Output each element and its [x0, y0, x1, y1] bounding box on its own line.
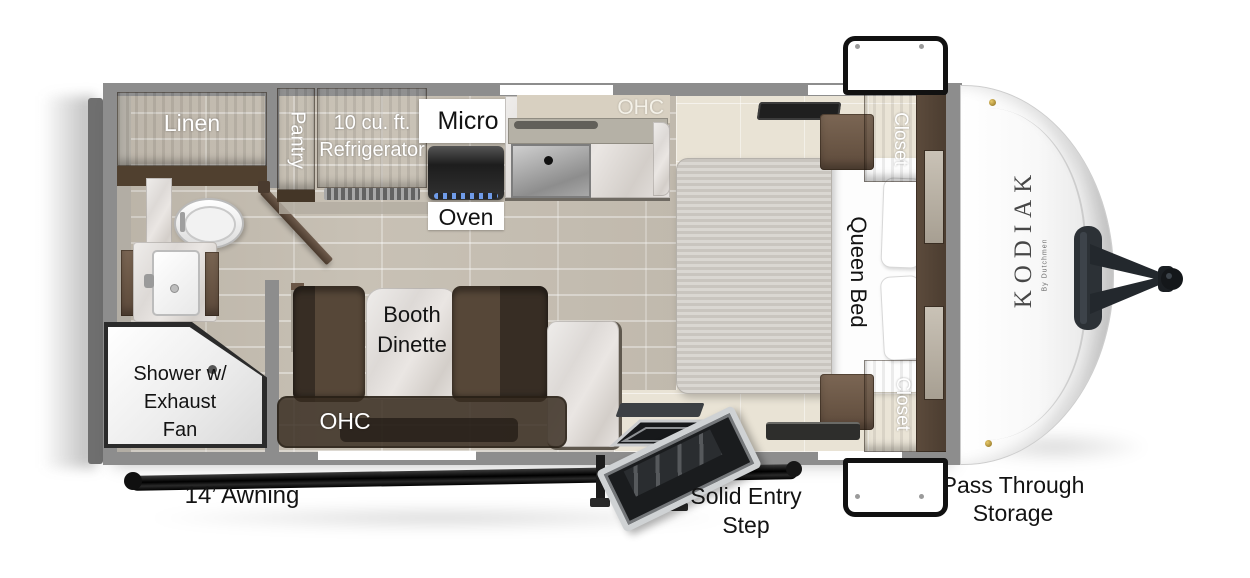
bathroom-sink — [152, 250, 200, 316]
toilet-seat — [184, 206, 236, 243]
oven — [428, 146, 504, 200]
brand-byline: By Dutchmen — [1042, 238, 1049, 291]
entry-step-foot-left — [590, 498, 610, 507]
storage-door-top-screw-right — [919, 44, 924, 49]
storage-door-bottom-screw-left — [855, 494, 860, 499]
closet-top-label: Closet — [889, 112, 911, 166]
wardrobe-mirror-bottom — [924, 306, 944, 400]
vanity-cabinet-right — [205, 252, 219, 316]
window-top-kitchen — [500, 85, 613, 95]
oven-knobs — [434, 193, 498, 199]
queen-bed-blanket — [676, 158, 832, 394]
microwave-label: Micro — [419, 107, 517, 136]
awning-endcap-right — [786, 461, 802, 477]
window-bottom-dinette — [318, 451, 476, 460]
shower-label: Shower w/ Exhaust Fan — [105, 360, 255, 444]
queen-bed-label: Queen Bed — [845, 216, 871, 327]
wardrobe-mirror-top — [924, 150, 944, 244]
kitchen-ohc-label: OHC — [600, 96, 668, 120]
cap-screw-bottom — [985, 440, 992, 447]
dinette-bench-left — [293, 286, 365, 402]
awning-endcap-left — [124, 472, 142, 490]
bathroom-door-hinge — [258, 181, 270, 193]
dinette-ohc-label: OHC — [300, 408, 390, 435]
rear-bumper — [88, 98, 103, 464]
linen-label: Linen — [117, 110, 267, 137]
brand-logo: KODIAK — [1010, 168, 1038, 309]
awning-label: 14’ Awning — [142, 482, 342, 510]
refrigerator-label: 10 cu. ft. Refrigerator — [317, 110, 427, 164]
kitchen-sink — [511, 144, 591, 198]
oven-label: Oven — [428, 204, 504, 231]
dinette-bench-right — [452, 286, 548, 402]
bathroom-sink-drain — [170, 284, 179, 293]
entry-step-label: Solid Entry Step — [660, 482, 832, 540]
dinette-label: Booth Dinette — [362, 300, 462, 360]
toilet-hinge — [180, 212, 185, 232]
kitchen-faucet — [514, 121, 598, 129]
bathroom-faucet — [144, 274, 154, 288]
floor-vent — [766, 422, 860, 440]
pantry-base — [277, 190, 315, 202]
storage-door-top-screw-left — [855, 44, 860, 49]
cap-screw-top — [989, 99, 996, 106]
kitchen-sink-drain — [544, 156, 553, 165]
closet-bottom-label: Closet — [891, 377, 913, 431]
pantry-label: Pantry — [286, 111, 309, 169]
linen-cabinet-base — [117, 166, 267, 186]
counter-end-column — [653, 122, 670, 196]
hitch — [1060, 220, 1185, 338]
refrigerator-vent — [324, 188, 420, 200]
rv-floorplan: Linen Shower w/ Exhaust Fan Pantry 10 cu… — [0, 0, 1250, 578]
pass-through-label: Pass Through Storage — [923, 471, 1103, 527]
